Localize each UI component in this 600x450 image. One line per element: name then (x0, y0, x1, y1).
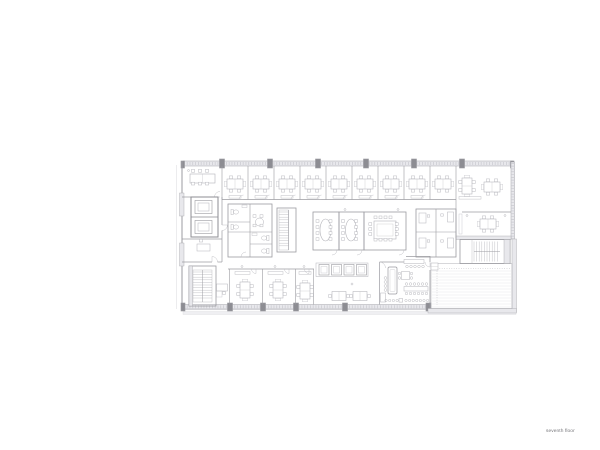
stools (423, 299, 425, 301)
ceiling-marker (303, 266, 305, 268)
chair (384, 238, 387, 241)
facade-column (364, 159, 369, 168)
chair (350, 295, 353, 298)
ceiling-marker (351, 283, 353, 285)
desk-cluster-pedestal (496, 221, 498, 227)
cafe-chairs (398, 272, 401, 275)
chair (379, 216, 382, 219)
chair (494, 192, 497, 195)
stools (392, 299, 394, 301)
chair (316, 226, 319, 229)
bar-stools (406, 265, 409, 268)
chair (283, 285, 286, 288)
terrace-edge-bottom (428, 309, 517, 314)
elevator-car (195, 221, 212, 234)
chair (307, 176, 310, 179)
stools (389, 299, 391, 301)
desk-cluster-pedestal (302, 181, 304, 187)
chair (223, 292, 226, 295)
stools (385, 299, 387, 301)
floor-label: seventh floor (546, 429, 575, 435)
chair (229, 176, 232, 179)
sideboard (235, 272, 250, 275)
sink (252, 233, 257, 236)
chair (315, 189, 318, 192)
desk-cluster-pedestal (275, 279, 281, 281)
toilet (231, 209, 233, 214)
stools (409, 283, 412, 286)
corner-column (181, 303, 185, 311)
chair (250, 285, 253, 288)
desk-cluster-pedestal (295, 181, 297, 187)
stools (417, 283, 420, 286)
boardroom-table (374, 221, 396, 239)
coat-hooks (384, 277, 387, 280)
chair (472, 189, 475, 192)
stools (421, 292, 424, 295)
chair (441, 214, 444, 216)
locker-inner (359, 267, 365, 274)
facade-column (294, 303, 299, 311)
bar-stools (422, 265, 425, 268)
chair (445, 176, 448, 179)
chair (255, 189, 258, 192)
chair (419, 189, 422, 192)
chair (253, 224, 256, 227)
chair (369, 233, 372, 236)
floor-plan-drawing (0, 0, 600, 450)
stools (405, 283, 408, 286)
toilet (267, 248, 269, 253)
desk-cluster-pedestal (380, 181, 382, 187)
chair (310, 294, 313, 297)
sideboard (268, 272, 283, 275)
copier (419, 213, 426, 223)
chair (297, 286, 300, 289)
chair (281, 176, 284, 179)
chair (191, 169, 194, 172)
locker-inner (346, 267, 352, 274)
stools (405, 299, 407, 301)
side-table (399, 299, 403, 303)
chair (289, 176, 292, 179)
bar-stools (418, 265, 421, 268)
print-counter (316, 263, 368, 277)
chair (355, 226, 358, 229)
stair-wall-hatch (456, 236, 511, 240)
copier (448, 238, 454, 248)
chair (205, 169, 208, 172)
chair (316, 238, 319, 241)
chair (385, 176, 388, 179)
desk-cluster-pedestal (243, 181, 245, 187)
chair (369, 223, 372, 226)
terrace-edge-right (512, 239, 517, 312)
coat-hooks (384, 289, 387, 292)
desk-cluster-pedestal (347, 181, 349, 187)
elevator-car-inner (198, 203, 209, 211)
chair (270, 293, 273, 296)
chair (329, 238, 332, 241)
chair (341, 189, 344, 192)
ceiling-marker (188, 170, 190, 172)
meeting-room (339, 212, 364, 250)
chair (198, 182, 201, 185)
chair (374, 238, 377, 241)
chair (427, 240, 430, 242)
chair (253, 215, 256, 218)
chair (355, 232, 358, 235)
desk-cluster-pedestal (242, 279, 248, 281)
chair (419, 176, 422, 179)
door-swing (212, 257, 218, 263)
chair (199, 239, 202, 242)
desk-cluster-pedestal (406, 181, 408, 187)
stools (421, 283, 424, 286)
facade-column (316, 159, 321, 168)
chair (237, 285, 240, 288)
chair (367, 189, 370, 192)
desk-cluster-pedestal (302, 299, 308, 301)
chair (237, 189, 240, 192)
desk-cluster-pedestal (354, 181, 356, 187)
stair-wall-hatch (504, 240, 510, 264)
chair (333, 189, 336, 192)
chair (229, 189, 232, 192)
stools (417, 292, 420, 295)
stools (412, 299, 414, 301)
desk-cluster-pedestal (399, 181, 401, 187)
desk-cluster-pedestal (276, 181, 278, 187)
desk-cluster-pedestal (500, 184, 502, 190)
desk (217, 284, 228, 291)
chair (237, 293, 240, 296)
left-wall-hatch (180, 193, 185, 216)
sideboard (459, 197, 481, 200)
chair (297, 294, 300, 297)
island-counter-inner (390, 270, 395, 292)
desk-cluster-pedestal (373, 181, 375, 187)
chair (260, 224, 263, 227)
chair (355, 220, 358, 223)
chair (367, 176, 370, 179)
long-table (404, 287, 428, 292)
locker (332, 265, 342, 276)
facade-column (261, 303, 266, 311)
chair (385, 189, 388, 192)
stools (419, 299, 421, 301)
chair (411, 176, 414, 179)
ceiling-marker (504, 215, 506, 217)
desk-cluster-pedestal (302, 280, 308, 282)
desk-cluster-pedestal (477, 221, 479, 227)
cafe-chairs (410, 272, 413, 275)
chair (263, 176, 266, 179)
desk-cluster-pedestal (425, 181, 427, 187)
chair (368, 295, 371, 298)
door-swing (399, 250, 404, 255)
chair (486, 192, 489, 195)
chair (260, 215, 263, 218)
chair (395, 223, 398, 226)
chair (283, 293, 286, 296)
stools (413, 292, 416, 295)
locker (344, 265, 354, 276)
facade-column (460, 159, 465, 168)
locker (357, 265, 367, 276)
desk-cluster-pedestal (481, 184, 483, 190)
chair (395, 233, 398, 236)
chair (445, 189, 448, 192)
chair (437, 176, 440, 179)
chair (310, 286, 313, 289)
chair (355, 238, 358, 241)
facade-column (343, 303, 348, 311)
door-swing (380, 262, 386, 268)
stools (426, 299, 428, 301)
chair (342, 238, 345, 241)
elevator-car-inner (198, 223, 209, 231)
chair (486, 179, 489, 182)
stools (425, 292, 428, 295)
ceiling-marker (274, 266, 276, 268)
bar-stools (414, 265, 417, 268)
boardroom-table-inner (377, 224, 393, 236)
chair (329, 226, 332, 229)
stools (413, 283, 416, 286)
chair (316, 220, 319, 223)
desk-cluster-pedestal (242, 298, 248, 300)
toilet (233, 225, 238, 229)
door-swing (241, 252, 246, 257)
door-swing (425, 262, 430, 267)
cabinet (459, 214, 462, 234)
chair (393, 176, 396, 179)
chair (374, 216, 377, 219)
chair (316, 232, 319, 235)
facade-column (228, 303, 233, 311)
desk-cluster-pedestal (464, 175, 470, 177)
chair (289, 189, 292, 192)
chair (437, 189, 440, 192)
cafe-chairs (398, 277, 401, 280)
locker-inner (334, 267, 340, 274)
chair (205, 182, 208, 185)
copier (448, 212, 454, 222)
chair (427, 215, 430, 217)
chair (459, 181, 462, 184)
chair (342, 220, 345, 223)
chair (379, 238, 382, 241)
stools (396, 299, 398, 301)
desk-return (217, 291, 223, 297)
chair (329, 232, 332, 235)
bar-counter (404, 260, 424, 264)
chair (347, 295, 350, 298)
stair-wall-hatch (189, 266, 193, 306)
coat-hooks (384, 285, 387, 288)
toilet (261, 249, 266, 253)
toilet (233, 210, 238, 214)
chair (459, 189, 462, 192)
chair (250, 293, 253, 296)
elevator-car (195, 201, 212, 214)
toilet (231, 224, 233, 229)
door-swing (252, 269, 257, 274)
facade-column (268, 159, 273, 168)
door-swing (285, 269, 290, 274)
chair (411, 189, 414, 192)
chair (342, 226, 345, 229)
chair (333, 176, 336, 179)
chair (393, 189, 396, 192)
desk-cluster-pedestal (269, 181, 271, 187)
chair (490, 229, 493, 232)
door-swing (222, 225, 228, 231)
stools (408, 299, 410, 301)
desk-cluster-pedestal (250, 181, 252, 187)
stools (409, 292, 412, 295)
chair (490, 216, 493, 219)
desk (197, 244, 210, 251)
desk-cluster-pedestal (275, 298, 281, 300)
chair (441, 240, 444, 242)
chair (384, 216, 387, 219)
ceiling-marker (397, 209, 399, 211)
door-swing (215, 192, 221, 198)
ceiling-marker (466, 215, 468, 217)
chair (329, 220, 332, 223)
chair (482, 216, 485, 219)
chair (307, 189, 310, 192)
locker (319, 265, 329, 276)
chair (389, 238, 392, 241)
facade-column (412, 159, 417, 168)
chair (341, 176, 344, 179)
left-wall-hatch (180, 243, 185, 266)
meeting-room (313, 212, 339, 250)
desk-cluster-pedestal (432, 181, 434, 187)
sheet: seventh floor (0, 0, 600, 450)
chair (281, 189, 284, 192)
stools (425, 283, 428, 286)
chair (482, 229, 485, 232)
desk-cluster-pedestal (451, 181, 453, 187)
chair (329, 295, 332, 298)
chair (359, 189, 362, 192)
stools (405, 292, 408, 295)
door-swing (357, 250, 362, 255)
chair (191, 182, 194, 185)
cafe-table (402, 272, 410, 280)
toilet (261, 236, 266, 240)
bar-stools (410, 265, 413, 268)
copier (419, 238, 426, 248)
desk-cluster-pedestal (224, 181, 226, 187)
chair (359, 176, 362, 179)
locker-inner (321, 267, 327, 274)
chair (389, 216, 392, 219)
chair (494, 179, 497, 182)
ceiling-marker (241, 266, 243, 268)
chair (237, 176, 240, 179)
chair (342, 232, 345, 235)
chair (270, 285, 273, 288)
chair (263, 189, 266, 192)
chair (198, 169, 201, 172)
cafe-chairs (410, 277, 413, 280)
sink (242, 205, 247, 208)
island-counter (388, 267, 397, 294)
chair (395, 228, 398, 231)
chair (369, 228, 372, 231)
door-swing (332, 250, 337, 255)
toilet (267, 235, 269, 240)
stools (416, 299, 418, 301)
chair (255, 176, 258, 179)
desk-cluster-pedestal (328, 181, 330, 187)
chair (472, 181, 475, 184)
bottom-wall (183, 305, 430, 310)
coat-hooks (384, 281, 387, 284)
ceiling-marker (344, 209, 346, 211)
desk-cluster-pedestal (321, 181, 323, 187)
chair (315, 176, 318, 179)
